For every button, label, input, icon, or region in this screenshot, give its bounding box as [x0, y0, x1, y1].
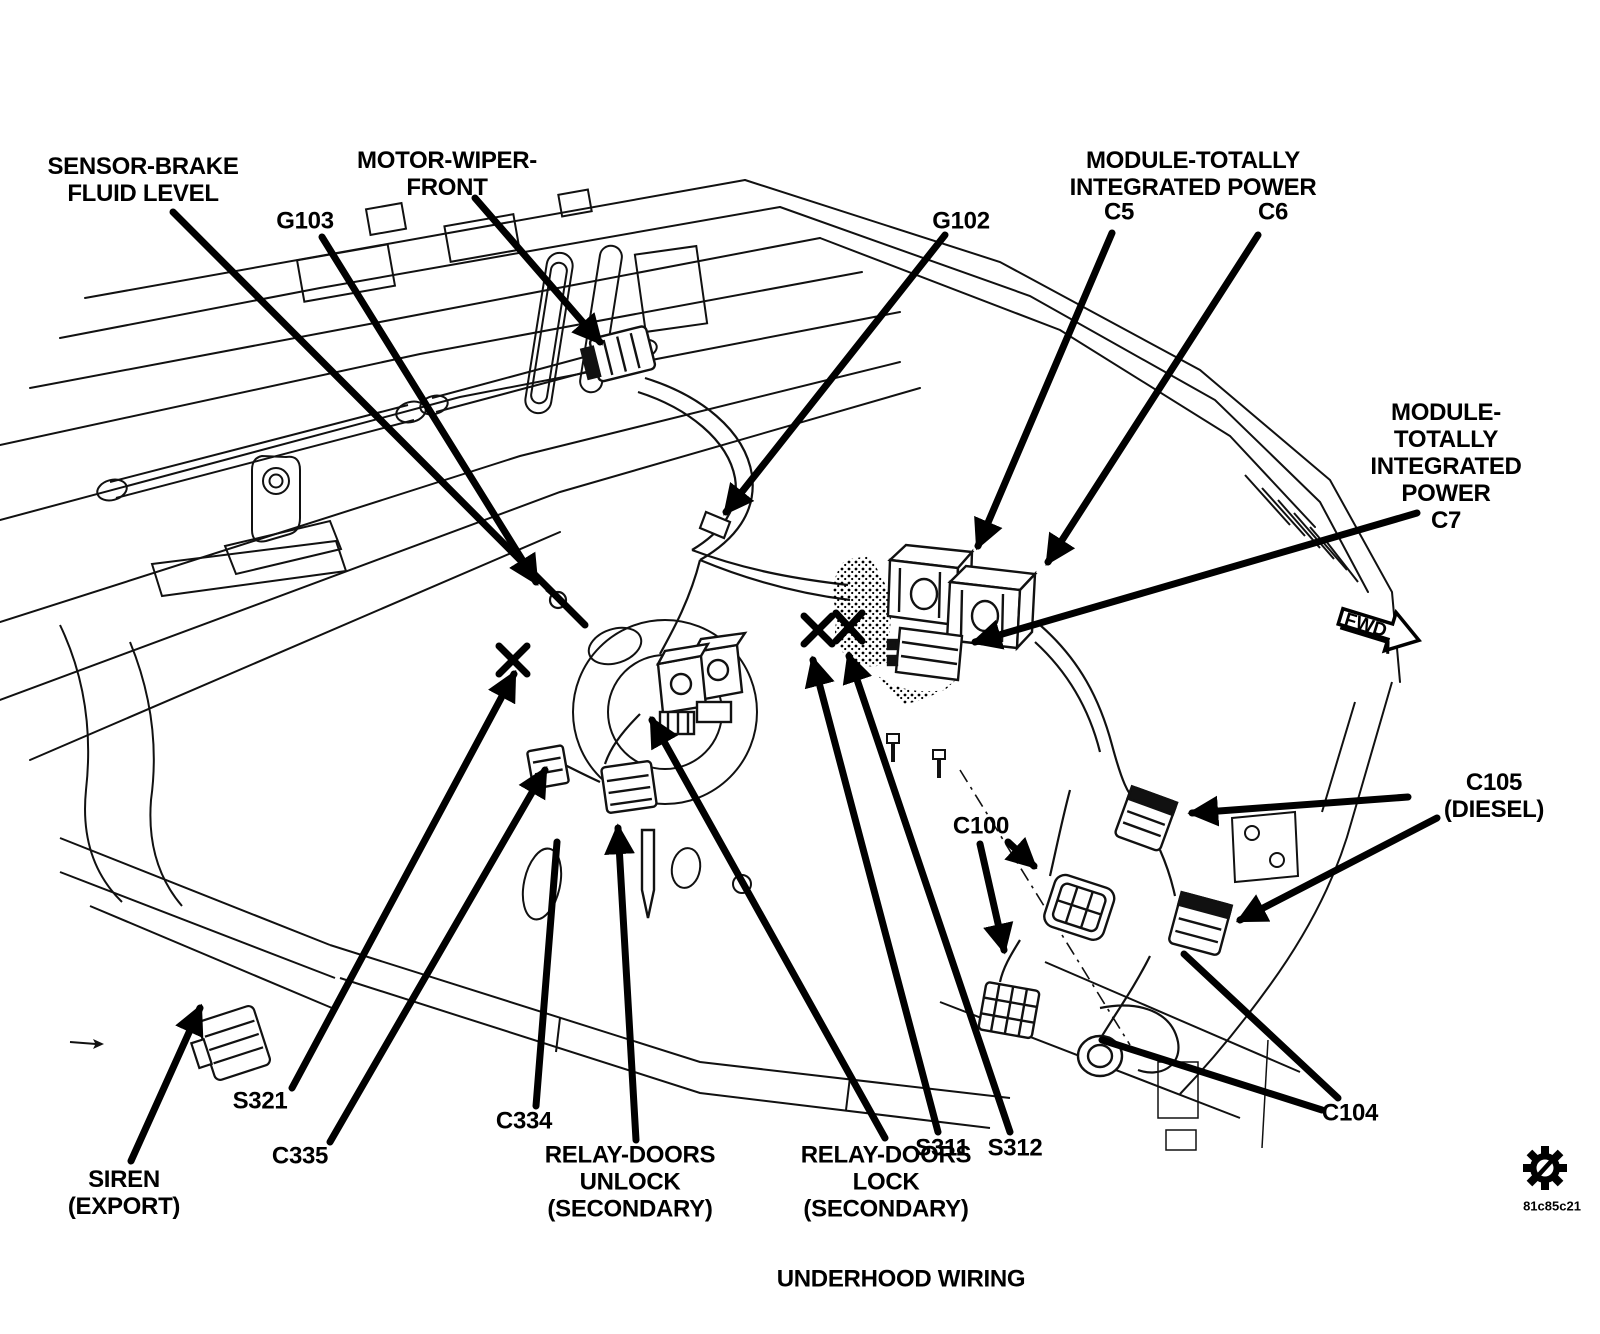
leader-relay-lock	[652, 720, 885, 1138]
hood-hatching	[1245, 475, 1358, 582]
diagram-line-art: FWD	[0, 0, 1600, 1334]
leader-c6	[1048, 235, 1258, 562]
left-fender-and-sill	[60, 625, 335, 1008]
splice-s321	[499, 646, 527, 674]
callout-g103: G103	[276, 207, 334, 234]
leader-relay-unlock	[618, 828, 636, 1140]
callout-c334: C334	[496, 1107, 552, 1134]
door-lock-relays	[658, 633, 745, 734]
underhood-wiring-diagram: FWD SENSOR-BRAKE FLUID LEVEL MOTOR-WIPER…	[0, 0, 1600, 1334]
callout-motor-wiper-front: MOTOR-WIPER- FRONT	[357, 147, 537, 201]
c100-connector-b	[978, 982, 1040, 1039]
mounting-studs	[887, 734, 945, 778]
callout-c335: C335	[272, 1142, 328, 1169]
gear-icon	[1523, 1146, 1567, 1190]
callout-c100: C100	[953, 812, 1009, 839]
leader-g103	[322, 237, 536, 582]
harness-tubes	[548, 378, 1178, 1072]
leader-c100-b	[980, 844, 1004, 950]
fender-bracket	[1232, 812, 1298, 882]
c334-connector	[601, 761, 657, 918]
callout-c105-diesel: C105 (DIESEL)	[1441, 769, 1547, 823]
leader-c334	[536, 842, 557, 1106]
hold-down-bracket	[152, 456, 346, 596]
callout-s311: S311	[915, 1134, 969, 1161]
callout-relay-doors-unlock: RELAY-DOORS UNLOCK (SECONDARY)	[545, 1141, 716, 1222]
splice-s311	[804, 616, 832, 644]
callout-sensor-brake-fluid-level: SENSOR-BRAKE FLUID LEVEL	[47, 153, 238, 207]
c335-connector	[527, 745, 569, 789]
leader-lines	[131, 198, 1437, 1161]
callout-g102: G102	[932, 207, 990, 234]
callout-tipm-c5-c6: MODULE-TOTALLY INTEGRATED POWER	[1070, 147, 1317, 201]
callout-tipm-c7: MODULE-TOTALLY INTEGRATED POWER C7	[1369, 399, 1523, 535]
fwd-arrow-icon: FWD	[1334, 597, 1425, 661]
figure-code: 81c85c21	[1523, 1200, 1581, 1215]
callout-c104: C104	[1322, 1099, 1378, 1126]
leader-c105-lower	[1240, 818, 1437, 920]
leader-siren	[131, 1008, 200, 1161]
callout-c5: C5	[1104, 198, 1134, 225]
g102-ground-point	[700, 512, 730, 538]
callout-s312: S312	[988, 1134, 1043, 1161]
callout-c6: C6	[1258, 198, 1288, 225]
c105-connector-upper	[1114, 786, 1177, 851]
diagram-title: UNDERHOOD WIRING	[777, 1265, 1026, 1292]
c105-connector-lower	[1168, 892, 1232, 956]
leader-c105-upper	[1192, 797, 1408, 813]
tipm-connector-c7	[888, 628, 962, 680]
callout-s321: S321	[233, 1087, 288, 1114]
callout-siren-export: SIREN (EXPORT)	[68, 1166, 180, 1220]
c100-connector-a	[1041, 872, 1117, 943]
